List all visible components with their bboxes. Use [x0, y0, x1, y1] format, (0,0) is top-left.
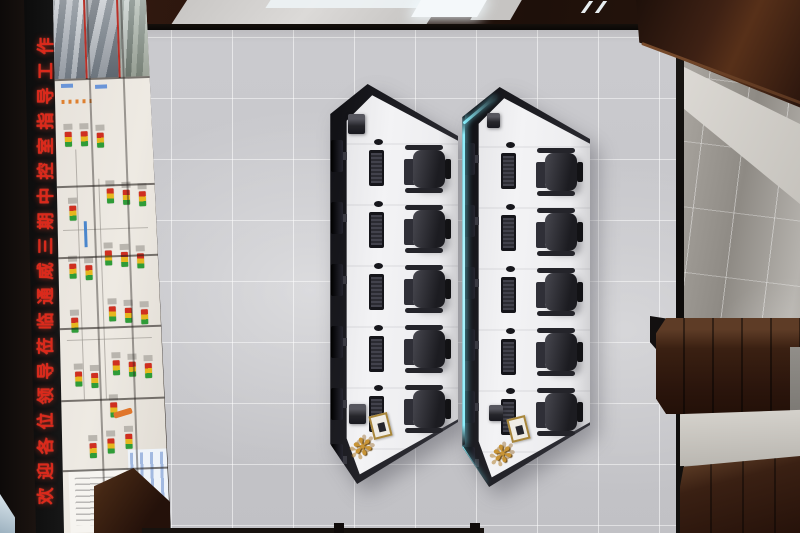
operator-chair [413, 210, 445, 248]
keyboard [501, 153, 516, 189]
ceiling-light-slit [581, 1, 593, 13]
status-indicator-cluster [145, 363, 153, 378]
printer-device [489, 405, 503, 421]
mouse [506, 388, 515, 394]
top-wall-edge [140, 24, 656, 30]
status-indicator-cluster [107, 438, 115, 453]
status-indicator-cluster [89, 443, 97, 458]
scada-header-tab [95, 84, 107, 88]
mouse [374, 201, 383, 207]
mouse [374, 385, 383, 391]
keyboard [369, 274, 384, 310]
mouse [506, 328, 515, 334]
operator-chair [545, 393, 577, 431]
right-wall-light-band [680, 410, 800, 466]
camera-feed-panel [50, 0, 86, 79]
keyboard [501, 215, 516, 251]
status-indicator-cluster [85, 265, 93, 280]
scada-connector [67, 337, 152, 341]
status-indicator-cluster [113, 360, 121, 375]
operator-chair [413, 270, 445, 308]
wood-sideboard-cabinet [656, 318, 800, 414]
operator-chair [545, 273, 577, 311]
keyboard [369, 150, 384, 186]
status-indicator-cluster [141, 309, 149, 324]
scada-header-tab [61, 84, 73, 88]
scada-dots [61, 99, 91, 104]
operator-chair [413, 390, 445, 428]
status-indicator-cluster [107, 188, 115, 203]
monitor [331, 444, 343, 476]
keyboard [501, 277, 516, 313]
status-indicator-cluster [109, 306, 117, 321]
status-indicator-cluster [139, 191, 147, 206]
monitor [331, 264, 343, 296]
status-indicator-cluster [69, 264, 77, 279]
led-ticker-text: 欢迎各位领导莅临通威三期中控室指导工作 [32, 29, 57, 504]
status-indicator-cluster [65, 132, 73, 147]
scada-connector [63, 227, 148, 231]
control-room-scene: 欢迎各位领导莅临通威三期中控室指导工作 [0, 0, 800, 533]
monitor [331, 326, 343, 358]
mouse [374, 325, 383, 331]
keyboard [369, 336, 384, 372]
monitor [331, 140, 343, 172]
mouse [374, 263, 383, 269]
status-indicator-cluster [81, 131, 89, 146]
status-indicator-cluster [125, 434, 133, 449]
keyboard [501, 339, 516, 375]
status-indicator-cluster [69, 206, 77, 221]
status-indicator-cluster [97, 133, 105, 148]
console-right: ✻ [459, 87, 590, 487]
monitor [331, 388, 343, 420]
mouse [374, 139, 383, 145]
mouse [506, 266, 515, 272]
console-shell: ✻ [327, 84, 458, 484]
console-shell: ✻ [459, 87, 590, 487]
ceiling-light-slit [595, 1, 607, 13]
status-indicator-cluster [91, 373, 99, 388]
console-left: ✻ [327, 84, 458, 484]
mouse [506, 142, 515, 148]
scada-blue-bar [84, 221, 88, 247]
status-indicator-cluster [75, 371, 83, 386]
mouse [506, 204, 515, 210]
bottom-wall-post [470, 523, 480, 533]
operator-chair [545, 333, 577, 371]
lower-wood-cabinet [680, 456, 800, 533]
status-indicator-cluster [71, 318, 79, 333]
printer-device [487, 113, 500, 128]
ceiling-light-panel [411, 0, 487, 17]
status-indicator-cluster [105, 250, 113, 265]
operator-chair [413, 330, 445, 368]
keyboard [369, 212, 384, 248]
operator-chair [413, 150, 445, 188]
operator-chair [545, 213, 577, 251]
printer-device [348, 114, 365, 134]
bottom-wall-post [334, 523, 344, 533]
bottom-wall-trim [142, 528, 484, 533]
printer-device [349, 404, 366, 424]
monitor [331, 202, 343, 234]
cyan-edge-light [462, 115, 465, 445]
operator-chair [545, 153, 577, 191]
cabinet-end-panel [790, 347, 800, 414]
